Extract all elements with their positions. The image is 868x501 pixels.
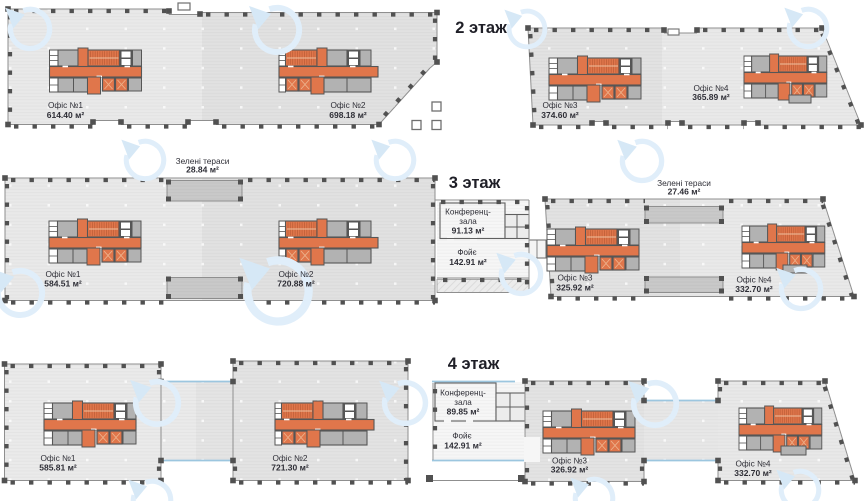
svg-text:142.91 м²: 142.91 м²	[449, 257, 487, 267]
svg-text:89.85 м²: 89.85 м²	[447, 407, 480, 417]
svg-text:4 этаж: 4 этаж	[448, 355, 500, 373]
svg-text:614.40 м²: 614.40 м²	[47, 110, 85, 120]
svg-text:332.70 м²: 332.70 м²	[734, 468, 772, 478]
svg-text:28.84 м²: 28.84 м²	[186, 165, 219, 175]
svg-text:720.88 м²: 720.88 м²	[277, 279, 315, 289]
svg-text:584.51 м²: 584.51 м²	[44, 279, 82, 289]
svg-text:326.92 м²: 326.92 м²	[551, 465, 589, 475]
svg-text:3 этаж: 3 этаж	[449, 174, 501, 192]
svg-text:Офіс №1: Офіс №1	[45, 269, 80, 279]
svg-text:698.18 м²: 698.18 м²	[329, 110, 367, 120]
svg-text:Офіс №3: Офіс №3	[542, 100, 577, 110]
svg-text:374.60 м²: 374.60 м²	[541, 110, 579, 120]
svg-text:2 этаж: 2 этаж	[455, 19, 507, 37]
svg-text:Фойє: Фойє	[452, 432, 471, 441]
svg-text:Офіс №1: Офіс №1	[48, 100, 83, 110]
svg-text:27.46 м²: 27.46 м²	[668, 187, 701, 197]
svg-text:Офіс №4: Офіс №4	[735, 459, 770, 469]
svg-text:Конференц-: Конференц-	[440, 389, 486, 398]
svg-text:91.13 м²: 91.13 м²	[452, 226, 485, 236]
svg-text:Офіс №2: Офіс №2	[278, 269, 313, 279]
svg-text:Фойє: Фойє	[457, 248, 476, 257]
svg-text:365.89 м²: 365.89 м²	[692, 92, 730, 102]
svg-text:585.81 м²: 585.81 м²	[39, 462, 77, 472]
svg-text:Офіс №3: Офіс №3	[557, 273, 592, 283]
svg-text:721.30 м²: 721.30 м²	[271, 462, 309, 472]
svg-text:Офіс №4: Офіс №4	[736, 275, 771, 285]
svg-text:Конференц-: Конференц-	[445, 208, 491, 217]
svg-text:Офіс №2: Офіс №2	[330, 100, 365, 110]
svg-text:142.91 м²: 142.91 м²	[444, 441, 482, 451]
svg-text:325.92 м²: 325.92 м²	[556, 282, 594, 292]
svg-text:332.70 м²: 332.70 м²	[735, 284, 773, 294]
